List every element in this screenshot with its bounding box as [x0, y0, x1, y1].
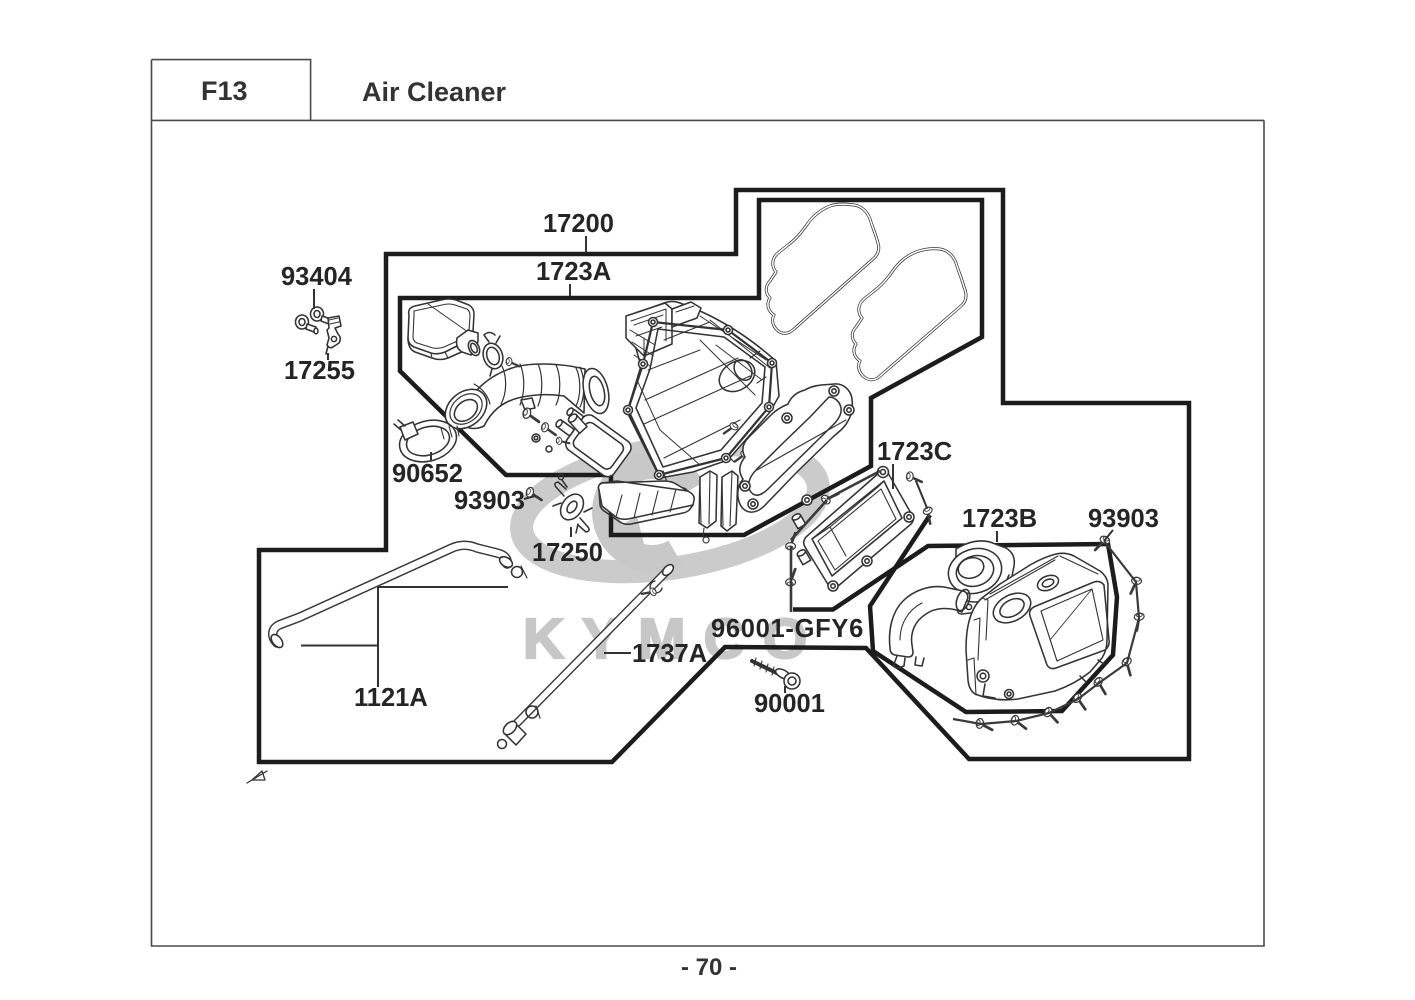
svg-text:1723B: 1723B [962, 505, 1037, 533]
svg-text:17200: 17200 [543, 210, 614, 238]
svg-text:- 70 -: - 70 - [681, 954, 737, 981]
svg-text:Air Cleaner: Air Cleaner [362, 77, 507, 107]
svg-text:1723A: 1723A [536, 258, 611, 286]
svg-text:93903: 93903 [1088, 505, 1159, 533]
svg-text:1737A: 1737A [632, 640, 707, 668]
svg-text:90652: 90652 [392, 460, 463, 488]
svg-text:1121A: 1121A [354, 684, 428, 712]
svg-text:17255: 17255 [284, 357, 355, 385]
svg-text:90001: 90001 [754, 690, 825, 718]
svg-text:96001-GFY6: 96001-GFY6 [711, 615, 864, 643]
svg-text:F13: F13 [201, 76, 248, 106]
svg-text:17250: 17250 [532, 539, 603, 567]
svg-text:93404: 93404 [281, 263, 353, 291]
svg-text:93903: 93903 [454, 487, 525, 515]
svg-text:1723C: 1723C [877, 438, 952, 466]
